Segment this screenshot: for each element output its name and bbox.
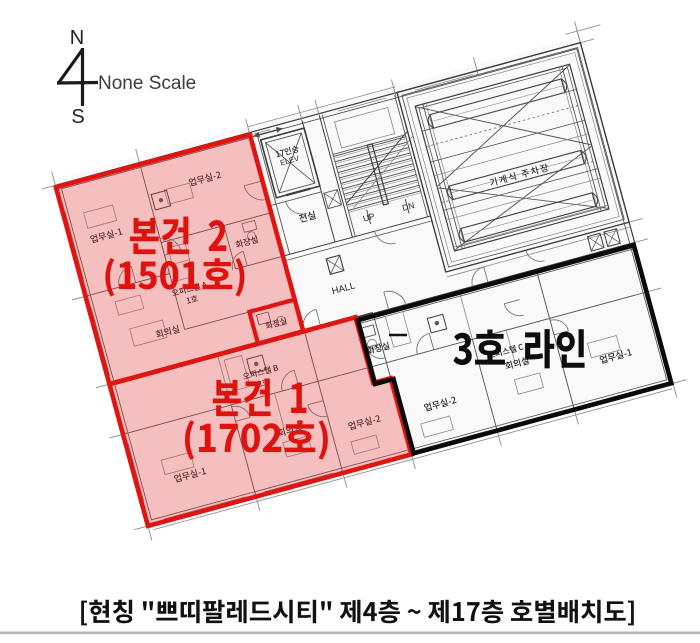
svg-text:None Scale: None Scale [98,73,196,94]
svg-text:N: N [70,27,84,49]
svg-text:S: S [71,106,84,128]
